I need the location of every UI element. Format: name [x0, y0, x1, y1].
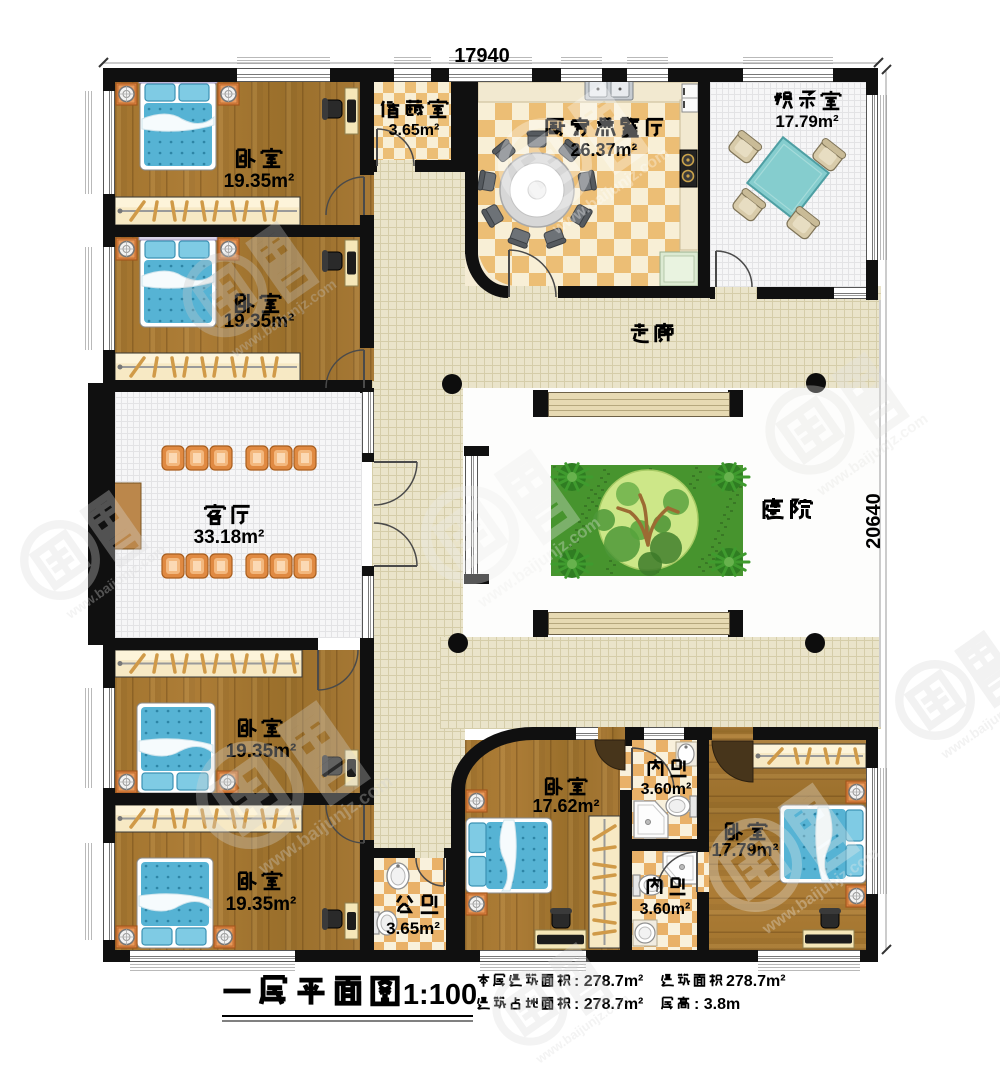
svg-text:17.79m²: 17.79m² [775, 112, 839, 131]
svg-text:26.37m²: 26.37m² [570, 140, 637, 160]
svg-text:3.65m²: 3.65m² [389, 122, 440, 139]
svg-text:3.60m²: 3.60m² [640, 901, 691, 918]
svg-text:19.35m²: 19.35m² [226, 741, 297, 762]
svg-text:1:100: 1:100 [403, 979, 477, 1011]
svg-text:: 3.8m: : 3.8m [694, 996, 740, 1013]
svg-text:3.65m²: 3.65m² [386, 919, 440, 938]
svg-text:19.35m²: 19.35m² [226, 894, 297, 915]
svg-text:: 278.7m²: : 278.7m² [574, 996, 643, 1013]
svg-text:278.7m²: 278.7m² [726, 973, 786, 990]
svg-text:17.62m²: 17.62m² [532, 796, 599, 816]
svg-text:: 278.7m²: : 278.7m² [574, 973, 643, 990]
svg-text:17.79m²: 17.79m² [711, 840, 778, 860]
svg-text:19.35m²: 19.35m² [224, 171, 295, 192]
svg-text:3.60m²: 3.60m² [641, 781, 692, 798]
svg-text:17940: 17940 [454, 45, 510, 67]
svg-text:20640: 20640 [863, 493, 885, 549]
svg-text:19.35m²: 19.35m² [224, 311, 295, 332]
svg-text:33.18m²: 33.18m² [194, 527, 265, 548]
